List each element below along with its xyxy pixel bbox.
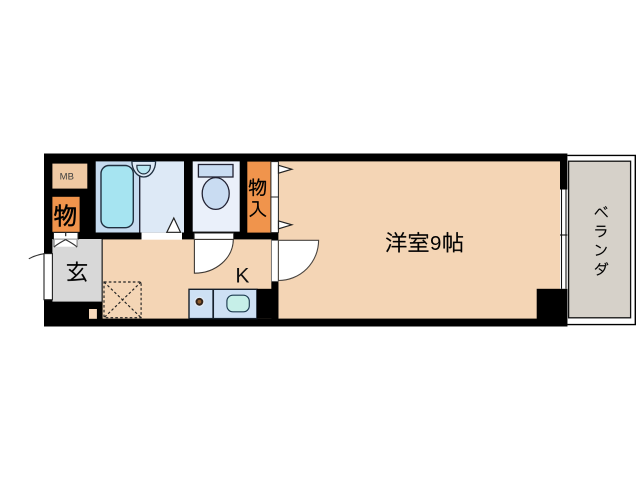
svg-text:9: 9: [430, 232, 441, 255]
svg-text:MB: MB: [60, 172, 74, 183]
svg-text:K: K: [235, 264, 249, 287]
